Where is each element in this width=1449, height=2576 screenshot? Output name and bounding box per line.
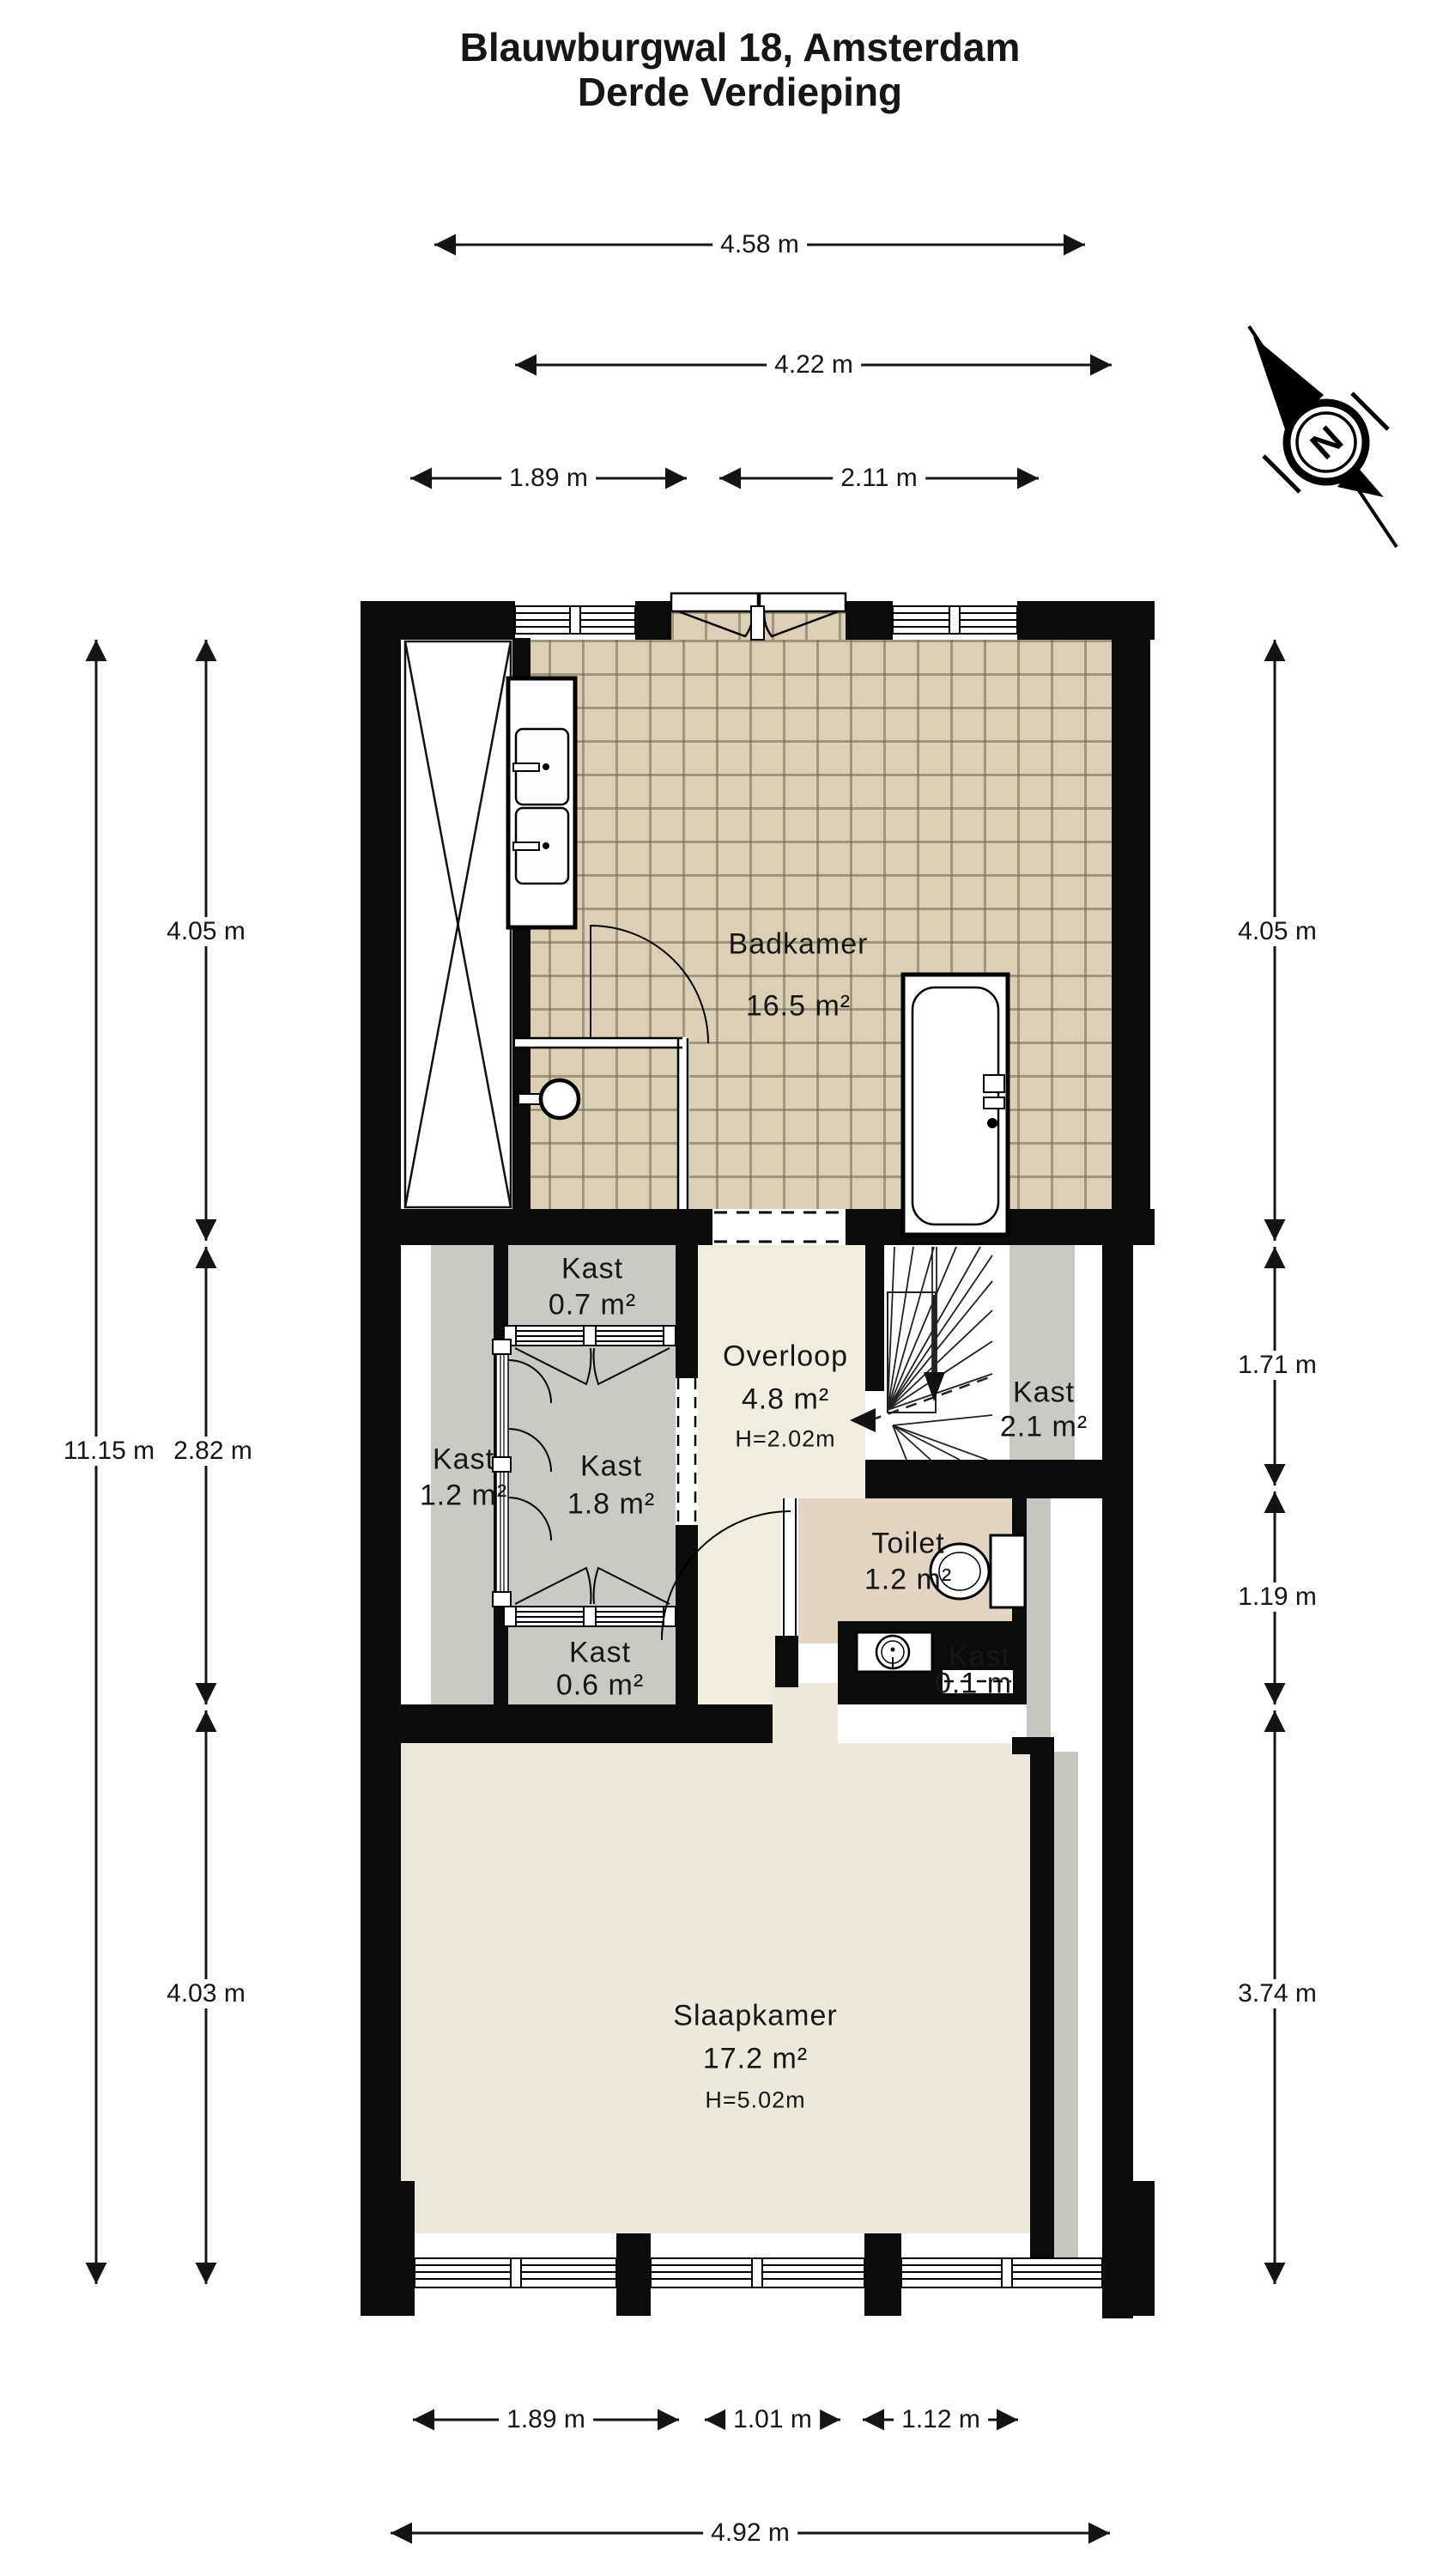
slaapkamer-label: Slaapkamer	[673, 2000, 837, 2033]
dim-left-bath: 4.05 m	[159, 917, 253, 946]
kast-21-label: Kast	[1013, 1376, 1075, 1410]
toilet-label: Toilet	[871, 1528, 944, 1561]
floorplan-page: Blauwburgwal 18, Amsterdam Derde Verdiep…	[0, 0, 1449, 2576]
dim-top-left: 1.89 m	[501, 464, 596, 493]
shower-screen-icon	[515, 1037, 689, 1209]
shaft-cross-icon	[405, 641, 511, 1207]
dim-top-total: 4.58 m	[712, 230, 807, 259]
badkamer-door-icon	[591, 926, 708, 1043]
overloop-label: Overloop	[723, 1340, 848, 1374]
badkamer-label: Badkamer	[729, 928, 869, 962]
dim-top-inner: 4.22 m	[767, 350, 861, 380]
kast06-doors-icon	[504, 1568, 676, 1626]
kast-12-label: Kast	[433, 1443, 494, 1477]
overloop-height: H=2.02m	[735, 1426, 835, 1453]
kast-21-area: 2.1 m²	[1000, 1411, 1088, 1444]
slaapkamer-height: H=5.02m	[705, 2087, 805, 2114]
kast-06-area: 0.6 m²	[556, 1669, 644, 1703]
kast-18-area: 1.8 m²	[567, 1488, 655, 1522]
window-top-left-icon	[515, 606, 635, 634]
stairs-icon	[850, 1245, 994, 1460]
kast18-bifold-icon	[493, 1340, 551, 1607]
washbasin-icon	[513, 1080, 579, 1118]
opening-dashed-icon	[712, 1209, 846, 1245]
sink-cabinet-icon	[508, 678, 575, 927]
dim-bottom-1: 1.89 m	[499, 2405, 593, 2434]
kast-07-label: Kast	[561, 1253, 623, 1286]
dim-right-bath: 4.05 m	[1230, 917, 1325, 946]
dim-bottom-2: 1.01 m	[725, 2405, 820, 2434]
dim-top-right: 2.11 m	[833, 464, 925, 493]
bathtub-icon	[903, 975, 1008, 1235]
dim-bottom-3: 1.12 m	[894, 2405, 988, 2434]
overloop-area: 4.8 m²	[742, 1383, 829, 1417]
window-top-right-icon	[893, 606, 1017, 634]
kast-01-area: 0.1 m	[935, 1668, 1012, 1701]
dim-right-bedroom: 3.74 m	[1230, 1979, 1325, 2008]
kast07-doors-icon	[504, 1326, 676, 1384]
dim-right-stairs: 1.71 m	[1230, 1351, 1325, 1380]
dim-left-bedroom: 4.03 m	[159, 1979, 253, 2008]
dim-bottom-total: 4.92 m	[703, 2518, 797, 2548]
slaapkamer-area: 17.2 m²	[703, 2043, 808, 2076]
dim-left-total: 11.15 m	[56, 1437, 162, 1466]
vent-unit-icon	[857, 1632, 932, 1672]
plan-lineart: N	[0, 0, 1449, 2576]
toilet-area: 1.2 m²	[864, 1564, 952, 1597]
kast-12-area: 1.2 m²	[420, 1479, 507, 1513]
compass-icon: N	[1249, 326, 1397, 547]
window-bottom-icons	[415, 2258, 1102, 2287]
kast-18-label: Kast	[580, 1450, 642, 1484]
badkamer-area: 16.5 m²	[746, 990, 851, 1024]
dim-left-middle: 2.82 m	[166, 1437, 260, 1466]
kast18-opening-icon	[676, 1378, 698, 1525]
kast-06-label: Kast	[569, 1637, 631, 1670]
kast-07-area: 0.7 m²	[549, 1289, 636, 1322]
dim-right-toilet: 1.19 m	[1230, 1583, 1325, 1612]
